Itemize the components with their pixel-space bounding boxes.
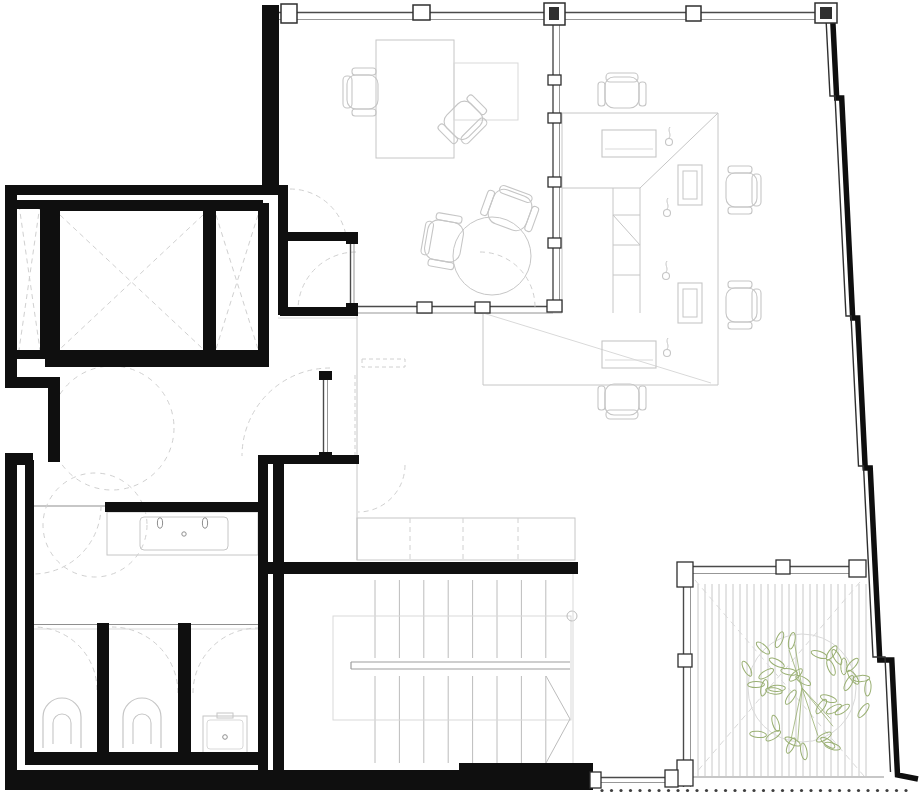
walls [5,5,918,790]
wc-fixtures [33,506,258,753]
terrace [695,580,872,776]
chair-icon [726,166,761,214]
chair-icon [726,281,761,329]
toilet-icon [43,698,81,748]
mouse-icon [663,261,670,280]
cabinet-row [278,315,575,560]
laptop-icon [602,130,656,157]
chair-icon [435,92,494,151]
monitor-icon [678,283,702,323]
property-dots [600,789,907,792]
floor-plan [0,0,921,800]
chair-icon [478,181,542,236]
mouse-icon [666,127,673,146]
chair-icon [343,68,378,116]
mouse-icon [664,198,671,217]
staircase [333,574,577,763]
floor-plan-canvas [0,0,921,800]
chair-icon [598,73,646,108]
office-furniture [343,40,761,419]
chair-icon [419,211,467,271]
toilet-icon [123,698,161,748]
glazing-lines [279,13,884,788]
monitor-icon [678,165,702,205]
mouse-icon [664,338,671,357]
chair-icon [598,384,646,419]
